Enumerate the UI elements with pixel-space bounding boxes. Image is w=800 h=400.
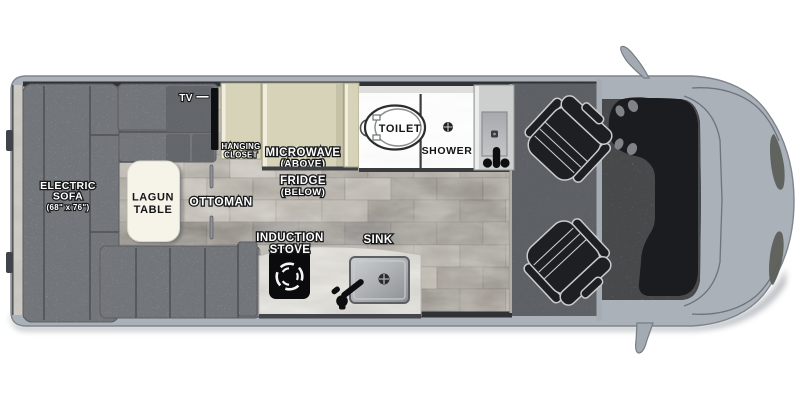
svg-text:STOVE: STOVE xyxy=(270,244,311,256)
svg-text:OTTOMAN: OTTOMAN xyxy=(189,195,252,209)
svg-text:(BELOW): (BELOW) xyxy=(281,187,325,198)
svg-text:TV: TV xyxy=(179,93,192,104)
svg-text:FRIDGE: FRIDGE xyxy=(280,175,326,187)
svg-text:TOILET: TOILET xyxy=(379,123,422,135)
svg-text:SOFA: SOFA xyxy=(53,191,83,203)
svg-text:TABLE: TABLE xyxy=(134,204,173,216)
svg-text:SINK: SINK xyxy=(363,234,392,246)
svg-text:SHOWER: SHOWER xyxy=(422,145,473,157)
svg-text:(68" x 76"): (68" x 76") xyxy=(47,203,90,212)
svg-text:INDUCTION: INDUCTION xyxy=(256,232,324,244)
svg-text:LAGUN: LAGUN xyxy=(132,192,174,204)
svg-text:CLOSET: CLOSET xyxy=(224,151,257,160)
svg-text:MICROWAVE: MICROWAVE xyxy=(266,147,341,159)
